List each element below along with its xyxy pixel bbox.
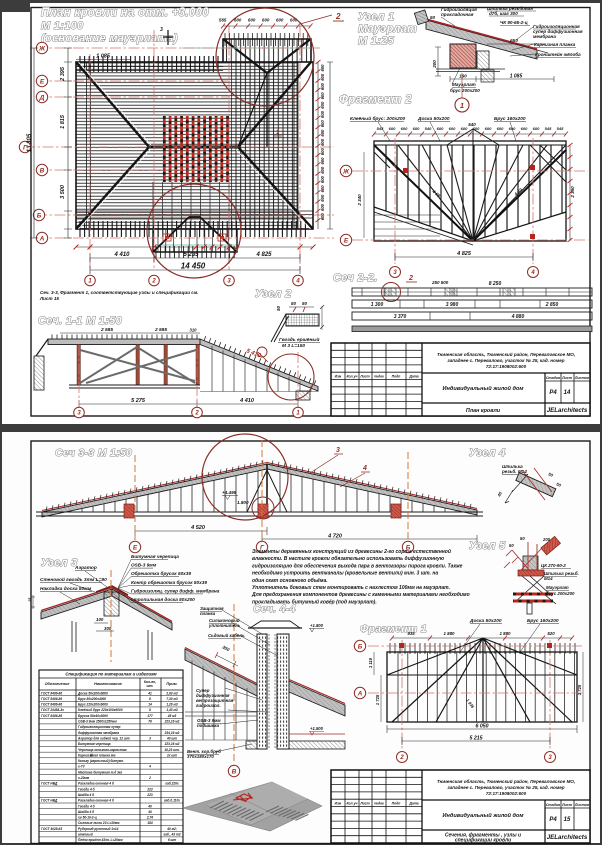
svg-text:хв 50-10-2-ц: хв 50-10-2-ц <box>77 816 97 820</box>
svg-text:4: 4 <box>362 465 367 472</box>
svg-text:2 585: 2 585 <box>100 327 113 333</box>
svg-text:ЦК 270-90-2: ЦК 270-90-2 <box>541 563 566 568</box>
svg-text:8: 8 <box>149 708 151 712</box>
svg-text:Фрагмент 2: Фрагмент 2 <box>339 94 412 106</box>
svg-text:ГОСТ 8486-86: ГОСТ 8486-86 <box>41 691 62 695</box>
svg-text:600: 600 <box>320 157 325 165</box>
svg-text:3: 3 <box>149 736 151 740</box>
svg-text:Доска 50х200: Доска 50х200 <box>469 618 502 624</box>
svg-text:Изм: Изм <box>335 801 342 805</box>
svg-text:3 370: 3 370 <box>394 314 407 320</box>
svg-text:1 880: 1 880 <box>500 631 512 636</box>
svg-text:В: В <box>232 768 237 775</box>
svg-text:мембрана: мембрана <box>533 33 556 39</box>
svg-text:2: 2 <box>399 755 404 761</box>
svg-text:2: 2 <box>151 279 156 285</box>
svg-text:Гвоздь ершёный: Гвоздь ершёный <box>279 336 319 343</box>
svg-text:565: 565 <box>219 18 227 23</box>
svg-text:необходимо устроить вентканалы: необходимо устроить вентканалы (кровельн… <box>252 570 438 577</box>
svg-text:1: 1 <box>460 101 464 110</box>
svg-text:100: 100 <box>96 617 104 622</box>
svg-text:габ., 43 т3: габ., 43 т3 <box>163 833 180 837</box>
svg-text:габ.220х: габ.220х <box>165 782 179 786</box>
svg-text:600: 600 <box>320 175 325 183</box>
svg-text:2: 2 <box>148 776 151 780</box>
svg-text:600: 600 <box>461 126 468 131</box>
svg-text:Узел 2: Узел 2 <box>255 288 292 300</box>
svg-text:Изм: Изм <box>335 374 342 378</box>
svg-text:45 м3: 45 м3 <box>167 714 177 718</box>
svg-text:Лист: Лист <box>561 376 573 380</box>
svg-text:Гидроизоляц. супер дифф. мембр: Гидроизоляц. супер дифф. мембрана <box>131 587 220 593</box>
svg-text:Сеч 2-2.: Сеч 2-2. <box>333 272 378 284</box>
svg-text:600: 600 <box>320 138 325 146</box>
svg-text:600: 600 <box>320 194 325 202</box>
svg-text:Кол.уч: Кол.уч <box>347 801 358 805</box>
svg-text:600: 600 <box>320 166 325 174</box>
svg-text:200: 200 <box>432 60 437 69</box>
svg-text:600: 600 <box>320 129 325 137</box>
svg-text:Узел 5: Узел 5 <box>469 540 506 552</box>
svg-text:14: 14 <box>564 390 571 396</box>
svg-text:JELarchitects: JELarchitects <box>547 834 588 841</box>
svg-text:223: 223 <box>146 787 153 791</box>
svg-text:Фрагмент 1: Фрагмент 1 <box>360 623 427 635</box>
svg-text:Брус 160х200: Брус 160х200 <box>527 618 559 624</box>
svg-text:1,43 м3: 1,43 м3 <box>166 708 177 712</box>
svg-text:М14: М14 <box>544 576 553 581</box>
svg-text:диффузионная мембрана: диффузионная мембрана <box>78 731 119 735</box>
svg-text:50: 50 <box>520 536 525 541</box>
svg-text:50: 50 <box>276 305 281 311</box>
svg-text:Тюменская область, Тюменский р: Тюменская область, Тюменский район, Пере… <box>437 778 575 784</box>
svg-text:72:17:1908002:600: 72:17:1908002:600 <box>486 364 527 369</box>
svg-text:Гидроизоляционная супер: Гидроизоляционная супер <box>78 725 121 729</box>
svg-text:50: 50 <box>509 543 514 548</box>
svg-text:уплотнитель: уплотнитель <box>208 623 241 628</box>
svg-text:Узел 3: Узел 3 <box>41 557 78 569</box>
svg-text:Б: Б <box>358 643 363 650</box>
svg-text:Стадия: Стадия <box>546 803 561 807</box>
svg-text:2: 2 <box>194 411 199 417</box>
svg-text:600: 600 <box>320 185 325 193</box>
svg-text:4 880: 4 880 <box>511 314 525 320</box>
svg-text:5 275: 5 275 <box>131 398 146 404</box>
svg-text:600: 600 <box>320 73 325 81</box>
svg-text:План кровли на отм. +3.000: План кровли на отм. +3.000 <box>41 7 209 19</box>
svg-text:41: 41 <box>147 691 152 695</box>
svg-text:223,16 м2: 223,16 м2 <box>164 742 180 746</box>
svg-text:14 450: 14 450 <box>181 262 206 271</box>
svg-text:520: 520 <box>547 631 555 636</box>
svg-text:40: 40 <box>147 804 152 808</box>
svg-text:540: 540 <box>425 126 432 131</box>
svg-text:Е: Е <box>133 544 138 551</box>
svg-text:Сеч. 3-3, Фрагмент 1, соответс: Сеч. 3-3, Фрагмент 1, соответствующие уз… <box>40 289 199 295</box>
svg-text:540: 540 <box>468 122 476 127</box>
svg-text:Лист: Лист <box>359 801 369 805</box>
svg-text:Сеч. 4-4: Сеч. 4-4 <box>253 603 296 615</box>
svg-text:Плёнк ершённ 43/т. L=20мм: Плёнк ершённ 43/т. L=20мм <box>78 838 123 842</box>
svg-text:13 305: 13 305 <box>27 133 33 152</box>
svg-text:+1.500: +1.500 <box>310 726 324 731</box>
svg-text:Сьдовый кабель: Сьдовый кабель <box>208 633 245 638</box>
svg-text:5 215: 5 215 <box>470 736 483 742</box>
svg-text:стропильная доска 50х200: стропильная доска 50х200 <box>131 597 195 602</box>
svg-text:40 м2;: 40 м2; <box>166 827 177 831</box>
svg-text:223,16 м2: 223,16 м2 <box>164 720 180 724</box>
svg-text:Гвозди 4 б: Гвозди 4 б <box>78 787 96 791</box>
svg-text:3 980: 3 980 <box>446 302 459 308</box>
svg-text:4 720: 4 720 <box>327 534 342 540</box>
svg-text:600: 600 <box>521 126 528 131</box>
svg-text:План кровли: План кровли <box>466 408 501 414</box>
svg-text:один скат основного объёма.: один скат основного объёма. <box>252 577 328 584</box>
svg-text:223: 223 <box>146 793 153 797</box>
svg-text:Битумная черепица: Битумная черепица <box>131 554 179 559</box>
svg-text:Дата: Дата <box>408 801 418 805</box>
svg-text:Мауэрлат: Мауэрлат <box>358 23 417 35</box>
svg-text:Уплотнитель боковых стен монти: Уплотнитель боковых стен монтировать с н… <box>252 584 450 591</box>
svg-text:х-ТУ: х-ТУ <box>77 765 86 769</box>
svg-text:Доска 50х200: Доска 50х200 <box>417 116 450 122</box>
svg-text:18,23 шт.: 18,23 шт. <box>164 748 179 752</box>
svg-text:х-20мм: х-20мм <box>77 776 90 780</box>
svg-text:ГОСТ НВД: ГОСТ НВД <box>41 782 58 786</box>
svg-text:планка: планка <box>200 611 216 616</box>
svg-text:5 235: 5 235 <box>183 252 199 258</box>
svg-text:4 410: 4 410 <box>113 252 130 258</box>
svg-text:(основание мауэрлата): (основание мауэрлата) <box>41 33 178 45</box>
svg-text:Лист: Лист <box>561 803 573 807</box>
svg-text:Тюменская область, Тюменский р: Тюменская область, Тюменский район, Пере… <box>437 351 575 357</box>
svg-text:8 250: 8 250 <box>489 281 502 287</box>
svg-text:В: В <box>40 167 45 174</box>
svg-text:50: 50 <box>291 301 297 306</box>
svg-text:8: 8 <box>149 697 151 701</box>
svg-text:Индивидуальный жилой дом: Индивидуальный жилой дом <box>442 385 524 392</box>
svg-text:Мастика битумная т.д 3кг: Мастика битумная т.д 3кг <box>78 770 123 774</box>
svg-text:545: 545 <box>557 126 564 131</box>
svg-text:Наименование: Наименование <box>94 682 122 686</box>
svg-text:600: 600 <box>320 101 325 109</box>
svg-text:Сеч. 1-1 М 1:50: Сеч. 1-1 М 1:50 <box>38 315 123 327</box>
svg-text:600: 600 <box>320 203 325 211</box>
svg-text:Прим.: Прим. <box>166 682 177 686</box>
svg-text:Шайба 4 б: Шайба 4 б <box>78 810 95 814</box>
svg-text:гидроизоляцию для обеспечения: гидроизоляцию для обеспечения выхода пар… <box>252 562 463 569</box>
svg-text:Аэратор: Аэратор <box>74 565 97 571</box>
svg-text:Элементы деревянных конструкци: Элементы деревянных конструкций из древе… <box>252 548 451 555</box>
svg-text:ГОСТ НВД: ГОСТ НВД <box>41 799 58 803</box>
svg-text:Узел 1: Узел 1 <box>358 11 395 23</box>
svg-text:Шайба 4 б: Шайба 4 б <box>78 793 95 797</box>
svg-text:177: 177 <box>147 714 153 718</box>
svg-text:370х180х170: 370х180х170 <box>187 754 214 759</box>
svg-text:Д: Д <box>39 94 45 101</box>
svg-text:300: 300 <box>104 626 112 631</box>
svg-text:Ж: Ж <box>38 45 46 52</box>
svg-text:Карнизная планка: Карнизная планка <box>534 42 576 47</box>
svg-text:Стадия: Стадия <box>546 376 561 380</box>
svg-text:Р4: Р4 <box>549 390 557 396</box>
svg-text:4 825: 4 825 <box>456 251 472 257</box>
svg-text:А: А <box>357 690 363 697</box>
svg-text:2,76: 2,76 <box>146 816 153 820</box>
svg-text:Кронштейн жёлоба: Кронштейн жёлоба <box>535 51 581 57</box>
svg-text:234,16 м2: 234,16 м2 <box>164 731 180 735</box>
svg-text:600: 600 <box>320 120 325 128</box>
svg-text:ГОСТ 4028-63: ГОСТ 4028-63 <box>41 827 62 831</box>
svg-text:600: 600 <box>509 126 516 131</box>
svg-text:15: 15 <box>564 817 571 823</box>
svg-text:Индивидуальный жилой дом: Индивидуальный жилой дом <box>442 812 524 819</box>
svg-text:1 725: 1 725 <box>375 694 380 705</box>
svg-text:М 1:100: М 1:100 <box>41 20 84 32</box>
svg-text:брус 200х200: брус 200х200 <box>546 591 575 596</box>
svg-text:4 520: 4 520 <box>190 525 205 531</box>
svg-text:Рубероид рулонный 1х14: Рубероид рулонный 1х14 <box>78 827 119 831</box>
svg-text:Карниз凝ная планка мм: Карниз凝ная планка мм <box>78 753 116 757</box>
svg-text:Раскладка оконная 4 б: Раскладка оконная 4 б <box>78 799 115 803</box>
svg-text:Лист: Лист <box>359 374 369 378</box>
svg-text:310: 310 <box>190 328 198 333</box>
svg-text:1.800: 1.800 <box>237 500 249 505</box>
svg-text:600: 600 <box>320 92 325 100</box>
svg-text:600: 600 <box>320 82 325 90</box>
svg-text:1 085: 1 085 <box>510 74 523 80</box>
svg-text:М 3 L=150: М 3 L=150 <box>282 343 305 349</box>
svg-text:ЧК 90-65-2-ц: ЧК 90-65-2-ц <box>500 20 528 25</box>
svg-text:Коньку (карнизный) битумн.: Коньку (карнизный) битумн. <box>78 759 124 763</box>
svg-text:2 350: 2 350 <box>570 186 575 199</box>
svg-text:250 500: 250 500 <box>431 280 449 285</box>
svg-text:4: 4 <box>530 270 535 276</box>
svg-text:935: 935 <box>407 631 415 636</box>
svg-text:Брусок 50х40х3000: Брусок 50х40х3000 <box>78 714 108 718</box>
svg-text:ГОСТ 8486-86: ГОСТ 8486-86 <box>41 697 62 701</box>
svg-text:1 110: 1 110 <box>368 657 373 668</box>
svg-text:2: 2 <box>408 275 413 282</box>
svg-text:шт.: шт. <box>147 684 154 688</box>
svg-text:1 815: 1 815 <box>60 114 66 129</box>
svg-text:№док: №док <box>374 374 384 378</box>
svg-text:Б: Б <box>37 212 42 219</box>
svg-text:Кол.уч: Кол.уч <box>347 374 358 378</box>
svg-text:Черепица коньково-карнизная: Черепица коньково-карнизная <box>78 748 127 752</box>
svg-text:Битумная черепица: Битумная черепица <box>78 742 111 746</box>
svg-text:Силовые пыли 23 L=30мм: Силовые пыли 23 L=30мм <box>78 821 120 825</box>
svg-text:Накладка доска 50мм: Накладка доска 50мм <box>40 586 92 592</box>
svg-text:гидроизол.: гидроизол. <box>196 703 221 708</box>
svg-text:2: 2 <box>335 12 341 21</box>
svg-text:545: 545 <box>377 126 384 131</box>
svg-text:Обозначение: Обозначение <box>45 682 70 686</box>
svg-text:14: 14 <box>148 703 152 707</box>
svg-text:Лист 15: Лист 15 <box>39 296 59 301</box>
svg-text:3: 3 <box>160 27 163 33</box>
svg-text:600: 600 <box>248 18 256 23</box>
svg-text:1 300: 1 300 <box>371 302 384 308</box>
svg-text:2 395: 2 395 <box>60 66 66 82</box>
svg-text:Брус 220х200х6000: Брус 220х200х6000 <box>78 703 108 707</box>
svg-text:Узел 4: Узел 4 <box>469 447 506 459</box>
svg-text:М 1:25: М 1:25 <box>358 35 395 47</box>
svg-text:4: 4 <box>295 279 300 285</box>
svg-text:600: 600 <box>449 126 456 131</box>
svg-text:Подп: Подп <box>392 374 402 378</box>
svg-text:Для предохранения компонентов: Для предохранения компонентов древесины … <box>251 591 470 598</box>
svg-text:600: 600 <box>437 126 444 131</box>
svg-text:40 шт: 40 шт <box>166 736 177 740</box>
svg-text:600: 600 <box>485 126 492 131</box>
svg-text:40: 40 <box>147 810 152 814</box>
svg-text:JELarchitects: JELarchitects <box>547 407 588 414</box>
svg-text:6 050: 6 050 <box>476 724 489 730</box>
svg-text:Гвозди 4 б: Гвозди 4 б <box>78 804 96 808</box>
svg-text:№док: №док <box>374 801 384 805</box>
svg-text:влажности. В настиле кровли об: влажности. В настиле кровли обязательно … <box>252 555 445 562</box>
svg-text:Обрешотка брусок 50х39: Обрешотка брусок 50х39 <box>131 570 191 576</box>
svg-text:Ж: Ж <box>342 168 350 175</box>
svg-text:Листов: Листов <box>574 376 590 380</box>
svg-text:А: А <box>39 235 45 242</box>
svg-text:Стеновой гвоздь 3тм L=90: Стеновой гвоздь 3тм L=90 <box>40 576 107 583</box>
svg-text:4: 4 <box>148 765 151 769</box>
svg-text:600: 600 <box>389 126 396 131</box>
svg-text:4 410: 4 410 <box>239 398 254 404</box>
svg-text:ГОСТ 8486-86: ГОСТ 8486-86 <box>41 714 62 718</box>
svg-text:1,26 м3: 1,26 м3 <box>166 703 177 707</box>
svg-text:Подп: Подп <box>392 801 402 805</box>
svg-text:Спецификация по материалам и и: Спецификация по материалам и изделиям <box>65 672 157 677</box>
svg-text:прокладочная: прокладочная <box>441 12 474 17</box>
svg-text:Сеч 3-3 М 1:50: Сеч 3-3 М 1:50 <box>55 447 132 459</box>
svg-text:600: 600 <box>276 18 284 23</box>
svg-text:184: 184 <box>147 821 153 825</box>
svg-text:1 880: 1 880 <box>444 631 456 636</box>
svg-text:190: 190 <box>459 74 467 79</box>
svg-text:2,63 м3: 2,63 м3 <box>165 691 177 695</box>
svg-text:600: 600 <box>497 126 504 131</box>
svg-text:западнее с. Перевалово, участо: западнее с. Перевалово, участок № 25, ка… <box>447 785 564 790</box>
svg-text:Р4: Р4 <box>549 817 557 823</box>
svg-text:600: 600 <box>262 18 270 23</box>
svg-text:50: 50 <box>302 301 308 306</box>
svg-text:Раскладка оконная 4 б: Раскладка оконная 4 б <box>78 782 115 786</box>
svg-text:600: 600 <box>320 64 325 72</box>
svg-text:OSB-3 9мм 2500х1250мм: OSB-3 9мм 2500х1250мм <box>78 720 117 724</box>
svg-text:+1.800: +1.800 <box>310 623 324 628</box>
svg-text:брус 200х200: брус 200х200 <box>450 87 480 93</box>
svg-text:600: 600 <box>413 126 420 131</box>
svg-text:1 085: 1 085 <box>96 54 111 60</box>
svg-text:Мауэрлат: Мауэрлат <box>452 82 476 87</box>
svg-text:Брус 160х200: Брус 160х200 <box>494 116 526 122</box>
svg-text:600: 600 <box>533 126 540 131</box>
svg-text:50: 50 <box>430 15 436 20</box>
svg-text:Контр обрешотка брусок 50х39: Контр обрешотка брусок 50х39 <box>131 579 207 585</box>
svg-text:OSB-3 9мм: OSB-3 9мм <box>131 563 157 568</box>
svg-text:4 825: 4 825 <box>255 252 272 258</box>
svg-text:габ.б.110х: габ.б.110х <box>164 799 180 803</box>
svg-text:Дата: Дата <box>408 374 418 378</box>
svg-text:2 585: 2 585 <box>154 327 167 333</box>
svg-text:6 шт: 6 шт <box>168 838 176 842</box>
svg-text:ГОСТ 24454-3х: ГОСТ 24454-3х <box>41 708 64 712</box>
svg-text:76: 76 <box>148 720 152 724</box>
svg-text:Доска 50х200х6000: Доска 50х200х6000 <box>77 691 108 695</box>
svg-text:600: 600 <box>320 213 325 221</box>
svg-text:+4.495: +4.495 <box>222 490 237 495</box>
svg-text:Брус 80х200х4000: Брус 80х200х4000 <box>78 697 106 701</box>
svg-text:Аэратор для гибкой чер. 12 шт: Аэратор для гибкой чер. 12 шт <box>77 736 130 740</box>
svg-text:2х шт: 2х шт <box>166 753 177 757</box>
svg-text:Е: Е <box>40 78 45 85</box>
svg-text:3: 3 <box>336 447 340 454</box>
svg-text:2 850: 2 850 <box>545 302 559 308</box>
svg-text:600: 600 <box>320 148 325 156</box>
svg-text:1 725: 1 725 <box>577 684 582 695</box>
svg-text:72:17:1908002:600: 72:17:1908002:600 <box>486 791 527 796</box>
svg-text:западнее с. Перевалово, участо: западнее с. Перевалово, участок № 25, ка… <box>447 358 564 363</box>
svg-text:Клеёный брус 220х100х6000: Клеёный брус 220х100х6000 <box>78 708 123 712</box>
svg-text:545: 545 <box>545 126 552 131</box>
svg-text:2 340: 2 340 <box>357 194 362 207</box>
svg-text:атковый: атковый <box>78 833 93 837</box>
svg-text:спецификации кровли: спецификации кровли <box>455 837 511 844</box>
svg-text:200: 200 <box>542 537 551 542</box>
svg-text:Мауэрлат: Мауэрлат <box>546 585 569 590</box>
svg-text:Клеёный брус: 200х200: Клеёный брус: 200х200 <box>350 115 406 122</box>
svg-text:ГОСТ 8486-86: ГОСТ 8486-86 <box>41 703 62 707</box>
svg-text:7,30 м3: 7,30 м3 <box>166 697 177 701</box>
svg-text:Е: Е <box>344 237 349 244</box>
svg-text:600: 600 <box>401 126 408 131</box>
svg-text:подшивка: подшивка <box>197 723 220 728</box>
svg-text:3 500: 3 500 <box>60 185 66 199</box>
svg-text:600: 600 <box>320 110 325 118</box>
svg-text:Листов: Листов <box>574 803 590 807</box>
